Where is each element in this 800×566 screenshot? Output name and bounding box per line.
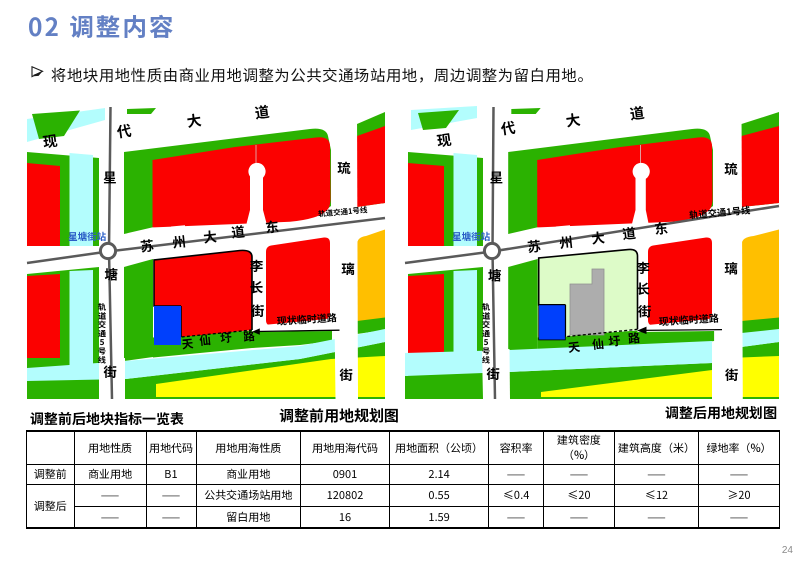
svg-text:星: 星	[103, 167, 117, 187]
svg-text:街: 街	[725, 364, 739, 384]
svg-text:长: 长	[636, 278, 650, 298]
svg-text:璃: 璃	[724, 258, 738, 278]
svg-text:线: 线	[481, 354, 490, 366]
svg-text:塘: 塘	[488, 265, 502, 285]
svg-text:仙: 仙	[591, 335, 605, 353]
svg-text:东: 东	[264, 215, 280, 236]
svg-text:天: 天	[181, 335, 195, 352]
svg-text:东: 东	[653, 217, 669, 238]
svg-text:塘: 塘	[104, 264, 118, 284]
svg-text:路: 路	[242, 328, 256, 345]
svg-text:长: 长	[250, 277, 264, 297]
svg-text:琉: 琉	[724, 158, 738, 178]
svg-text:道: 道	[621, 222, 637, 243]
svg-text:大: 大	[202, 225, 218, 246]
svg-text:苏: 苏	[139, 234, 155, 255]
svg-text:州: 州	[558, 231, 574, 252]
svg-text:星: 星	[490, 167, 504, 187]
svg-text:街: 街	[251, 300, 265, 320]
svg-text:天: 天	[567, 338, 581, 356]
svg-text:苏: 苏	[526, 235, 542, 256]
svg-text:李: 李	[250, 255, 264, 275]
svg-text:大: 大	[564, 109, 582, 132]
svg-text:线: 线	[97, 354, 106, 366]
svg-text:州: 州	[171, 230, 187, 251]
svg-text:街: 街	[486, 363, 500, 383]
svg-text:大: 大	[185, 109, 203, 132]
svg-text:代: 代	[499, 117, 517, 140]
svg-text:路: 路	[627, 329, 641, 347]
svg-text:道: 道	[230, 220, 246, 241]
svg-text:大: 大	[590, 226, 606, 247]
svg-text:琉: 琉	[337, 157, 351, 177]
svg-text:代: 代	[115, 120, 133, 143]
svg-text:璃: 璃	[341, 258, 355, 278]
svg-text:现: 现	[435, 129, 453, 152]
svg-text:街: 街	[339, 364, 353, 384]
svg-text:圩: 圩	[608, 332, 622, 350]
svg-text:道: 道	[253, 101, 271, 124]
svg-text:道: 道	[628, 102, 646, 125]
svg-text:李: 李	[636, 257, 650, 277]
svg-text:星塘街站: 星塘街站	[452, 229, 490, 243]
svg-text:街: 街	[638, 301, 652, 321]
svg-text:星塘街站: 星塘街站	[68, 229, 106, 243]
svg-text:圩: 圩	[219, 329, 232, 346]
svg-text:仙: 仙	[198, 332, 211, 349]
